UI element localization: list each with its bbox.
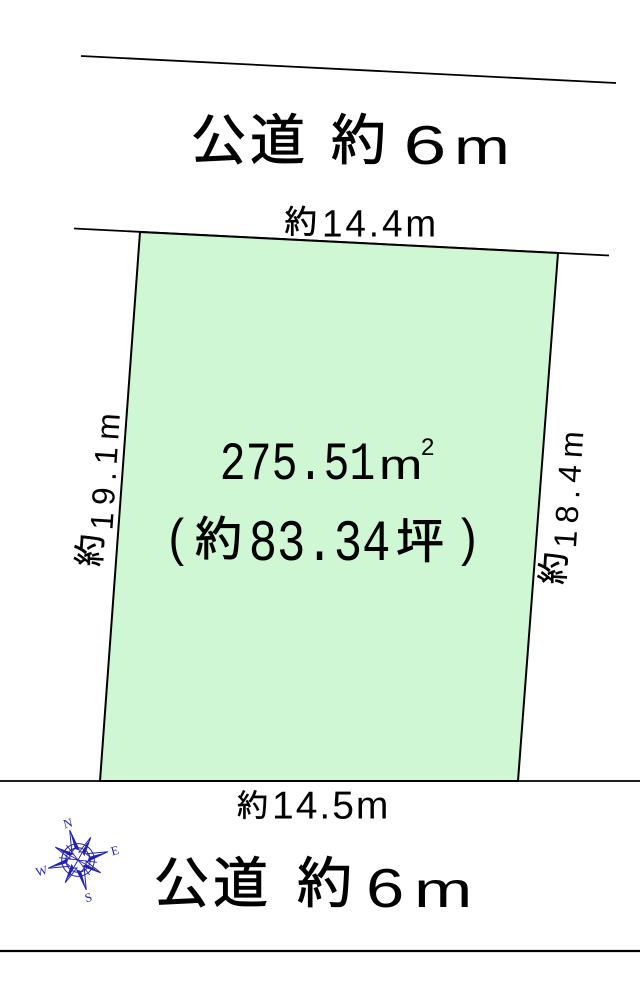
svg-text:14.4m: 14.4m [322, 202, 439, 245]
svg-text:14.5m: 14.5m [272, 785, 390, 828]
svg-text:18.4m: 18.4m [547, 423, 591, 549]
svg-text:N: N [62, 815, 74, 831]
svg-text:83.34: 83.34 [249, 512, 391, 578]
svg-text:E: E [109, 843, 120, 859]
svg-text:(: ( [169, 509, 185, 567]
svg-text:S: S [83, 890, 93, 905]
svg-text:): ) [461, 509, 477, 567]
svg-text:275.51: 275.51 [220, 434, 375, 496]
svg-text:m: m [454, 118, 510, 175]
svg-text:m: m [379, 442, 422, 489]
svg-text:W: W [34, 863, 49, 880]
svg-text:m: m [414, 862, 472, 918]
svg-text:6: 6 [404, 115, 447, 177]
svg-text:6: 6 [366, 858, 404, 919]
svg-text:2: 2 [421, 434, 434, 461]
